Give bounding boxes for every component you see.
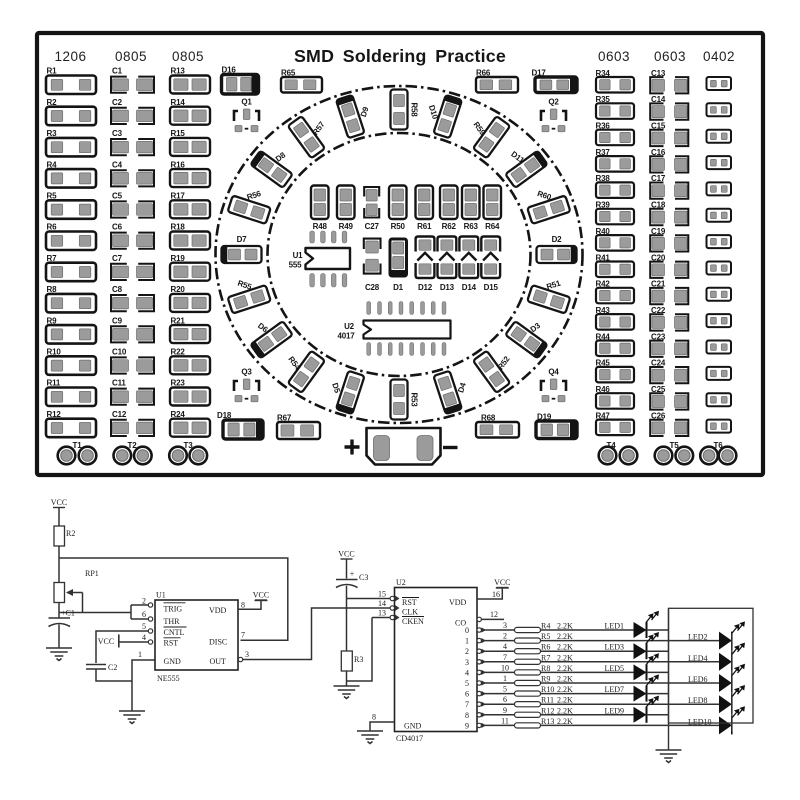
svg-text:4: 4 bbox=[465, 668, 469, 677]
svg-text:9: 9 bbox=[503, 706, 507, 715]
svg-text:C8: C8 bbox=[112, 285, 123, 294]
svg-text:4: 4 bbox=[142, 633, 146, 642]
svg-text:SMD Soldering Practice: SMD Soldering Practice bbox=[294, 46, 506, 66]
svg-text:THR: THR bbox=[164, 617, 181, 626]
svg-text:R12: R12 bbox=[541, 706, 554, 715]
svg-text:2.2K: 2.2K bbox=[557, 685, 573, 694]
svg-text:R8: R8 bbox=[541, 664, 550, 673]
svg-text:10: 10 bbox=[501, 663, 509, 672]
svg-text:R10: R10 bbox=[541, 685, 554, 694]
svg-text:R5: R5 bbox=[541, 632, 550, 641]
svg-text:5: 5 bbox=[142, 622, 146, 631]
svg-text:16: 16 bbox=[492, 590, 500, 599]
svg-text:R13: R13 bbox=[541, 717, 554, 726]
svg-text:11: 11 bbox=[501, 716, 509, 725]
svg-text:15: 15 bbox=[378, 590, 386, 599]
svg-text:R62: R62 bbox=[442, 222, 457, 231]
svg-text:C7: C7 bbox=[112, 254, 123, 263]
svg-text:R3: R3 bbox=[354, 655, 363, 664]
svg-text:+C1: +C1 bbox=[61, 609, 75, 618]
svg-text:LED7: LED7 bbox=[604, 685, 624, 694]
svg-text:C27: C27 bbox=[365, 222, 380, 231]
svg-text:7: 7 bbox=[465, 700, 469, 709]
svg-text:5: 5 bbox=[465, 679, 469, 688]
svg-text:C10: C10 bbox=[112, 348, 127, 357]
svg-text:7: 7 bbox=[241, 631, 245, 640]
svg-text:D15: D15 bbox=[484, 283, 499, 292]
svg-text:TRIG: TRIG bbox=[164, 605, 183, 614]
svg-text:VCC: VCC bbox=[494, 578, 510, 587]
svg-text:NE555: NE555 bbox=[157, 674, 180, 683]
svg-text:2.2K: 2.2K bbox=[557, 653, 573, 662]
svg-text:U2: U2 bbox=[344, 322, 355, 331]
svg-text:C3: C3 bbox=[112, 129, 123, 138]
svg-text:Q2: Q2 bbox=[548, 98, 559, 107]
svg-text:Q1: Q1 bbox=[241, 98, 252, 107]
svg-text:555: 555 bbox=[289, 261, 302, 270]
svg-text:4017: 4017 bbox=[338, 332, 356, 341]
svg-text:D14: D14 bbox=[462, 283, 477, 292]
svg-text:2.2K: 2.2K bbox=[557, 664, 573, 673]
svg-text:C6: C6 bbox=[112, 223, 123, 232]
svg-text:R50: R50 bbox=[391, 222, 406, 231]
svg-text:1: 1 bbox=[138, 650, 142, 659]
svg-text:R63: R63 bbox=[464, 222, 479, 231]
svg-text:C12: C12 bbox=[112, 410, 127, 419]
svg-text:DISC: DISC bbox=[209, 638, 227, 647]
svg-text:D2: D2 bbox=[552, 235, 563, 244]
svg-text:12: 12 bbox=[490, 610, 498, 619]
svg-text:6: 6 bbox=[142, 610, 146, 619]
svg-text:LED2: LED2 bbox=[688, 633, 708, 642]
svg-text:4: 4 bbox=[503, 642, 507, 651]
svg-text:R7: R7 bbox=[541, 653, 550, 662]
svg-text:0805: 0805 bbox=[172, 49, 204, 64]
svg-text:2.2K: 2.2K bbox=[557, 696, 573, 705]
svg-text:U2: U2 bbox=[396, 578, 406, 587]
svg-text:2.2K: 2.2K bbox=[557, 632, 573, 641]
svg-text:LED10: LED10 bbox=[688, 717, 712, 726]
svg-text:VCC: VCC bbox=[98, 637, 114, 646]
svg-text:U1: U1 bbox=[156, 591, 166, 600]
svg-text:R48: R48 bbox=[313, 222, 328, 231]
svg-text:VCC: VCC bbox=[338, 550, 354, 559]
svg-text:CKEN: CKEN bbox=[402, 617, 424, 626]
svg-text:C2: C2 bbox=[112, 98, 123, 107]
svg-text:1206: 1206 bbox=[54, 49, 86, 64]
svg-text:7: 7 bbox=[503, 653, 507, 662]
svg-text:2.2K: 2.2K bbox=[557, 622, 573, 631]
svg-text:R6: R6 bbox=[541, 643, 550, 652]
svg-text:2.2K: 2.2K bbox=[557, 675, 573, 684]
svg-text:R11: R11 bbox=[541, 696, 554, 705]
svg-text:R4: R4 bbox=[541, 622, 550, 631]
svg-text:C11: C11 bbox=[112, 379, 126, 388]
svg-text:GND: GND bbox=[164, 657, 182, 666]
svg-text:LED4: LED4 bbox=[688, 654, 708, 663]
svg-text:6: 6 bbox=[465, 690, 469, 699]
svg-text:VCC: VCC bbox=[51, 498, 67, 507]
svg-text:8: 8 bbox=[241, 601, 245, 610]
svg-text:C28: C28 bbox=[365, 283, 380, 292]
svg-text:+: + bbox=[350, 570, 355, 579]
svg-text:6: 6 bbox=[503, 695, 507, 704]
svg-text:C5: C5 bbox=[112, 192, 123, 201]
svg-text:CNTL: CNTL bbox=[164, 628, 185, 637]
svg-text:D13: D13 bbox=[440, 283, 455, 292]
svg-text:9: 9 bbox=[465, 721, 469, 730]
svg-text:C2: C2 bbox=[108, 663, 117, 672]
svg-text:3: 3 bbox=[465, 658, 469, 667]
svg-text:GND: GND bbox=[404, 722, 422, 731]
svg-text:0402: 0402 bbox=[703, 49, 735, 64]
svg-text:3: 3 bbox=[503, 621, 507, 630]
svg-text:13: 13 bbox=[378, 609, 386, 618]
svg-text:LED8: LED8 bbox=[688, 696, 708, 705]
svg-text:D12: D12 bbox=[418, 283, 433, 292]
svg-text:CLK: CLK bbox=[402, 608, 418, 617]
svg-text:VDD: VDD bbox=[209, 606, 227, 615]
svg-text:0603: 0603 bbox=[654, 49, 686, 64]
svg-text:LED3: LED3 bbox=[604, 643, 624, 652]
svg-text:14: 14 bbox=[378, 599, 386, 608]
svg-text:R49: R49 bbox=[339, 222, 354, 231]
svg-text:2: 2 bbox=[503, 632, 507, 641]
svg-text:OUT: OUT bbox=[210, 657, 227, 666]
svg-text:R64: R64 bbox=[485, 222, 500, 231]
svg-text:8: 8 bbox=[372, 713, 376, 722]
svg-text:0805: 0805 bbox=[115, 49, 147, 64]
svg-text:2: 2 bbox=[142, 597, 146, 606]
svg-text:2.2K: 2.2K bbox=[557, 706, 573, 715]
svg-text:2: 2 bbox=[465, 647, 469, 656]
svg-text:0: 0 bbox=[465, 626, 469, 635]
svg-text:1: 1 bbox=[465, 637, 469, 646]
svg-text:LED1: LED1 bbox=[604, 622, 624, 631]
svg-text:D1: D1 bbox=[393, 283, 404, 292]
svg-text:0603: 0603 bbox=[598, 49, 630, 64]
svg-text:D7: D7 bbox=[237, 235, 248, 244]
svg-text:C1: C1 bbox=[112, 67, 123, 76]
svg-text:LED9: LED9 bbox=[604, 706, 624, 715]
svg-text:R53: R53 bbox=[409, 392, 418, 407]
svg-text:R2: R2 bbox=[66, 529, 75, 538]
svg-text:LED6: LED6 bbox=[688, 675, 708, 684]
svg-text:VDD: VDD bbox=[449, 598, 467, 607]
svg-text:C3: C3 bbox=[359, 573, 368, 582]
svg-text:2.2K: 2.2K bbox=[557, 643, 573, 652]
svg-text:8: 8 bbox=[465, 711, 469, 720]
svg-text:2.2K: 2.2K bbox=[557, 717, 573, 726]
svg-text:C9: C9 bbox=[112, 316, 123, 325]
svg-text:RST: RST bbox=[164, 639, 179, 648]
svg-text:RST: RST bbox=[402, 598, 417, 607]
svg-text:Q4: Q4 bbox=[548, 368, 559, 377]
svg-text:3: 3 bbox=[245, 650, 249, 659]
svg-text:R61: R61 bbox=[417, 222, 432, 231]
svg-text:Q3: Q3 bbox=[241, 368, 252, 377]
svg-text:C4: C4 bbox=[112, 160, 123, 169]
svg-text:LED5: LED5 bbox=[604, 664, 624, 673]
svg-text:U1: U1 bbox=[293, 251, 304, 260]
svg-text:VCC: VCC bbox=[253, 591, 269, 600]
svg-text:CD4017: CD4017 bbox=[396, 734, 423, 743]
svg-text:1: 1 bbox=[503, 674, 507, 683]
svg-text:RP1: RP1 bbox=[85, 569, 99, 578]
svg-text:5: 5 bbox=[503, 685, 507, 694]
svg-text:R9: R9 bbox=[541, 675, 550, 684]
svg-text:R58: R58 bbox=[409, 102, 418, 117]
